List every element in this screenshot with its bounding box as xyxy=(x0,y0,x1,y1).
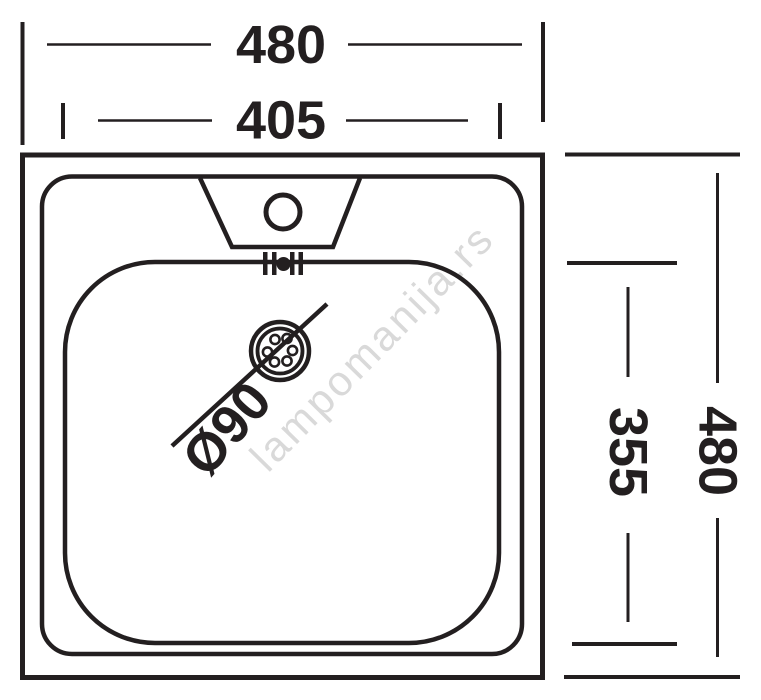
overflow-bar xyxy=(272,252,277,275)
faucet-deck xyxy=(200,178,360,247)
drain-hole xyxy=(270,335,279,344)
drain-hole xyxy=(282,356,291,365)
overflow-bar xyxy=(290,252,295,275)
overall-width-label: 480 xyxy=(236,15,326,75)
sink-technical-drawing: lampomanija.rs 480 405 xyxy=(0,0,761,700)
drain-hole xyxy=(270,357,279,366)
drawing-svg: lampomanija.rs 480 405 xyxy=(0,0,761,700)
drain-hole xyxy=(288,346,297,355)
bowl-depth-label: 355 xyxy=(598,407,658,497)
overflow-dot xyxy=(277,257,291,271)
overflow-bar xyxy=(299,252,304,275)
faucet-hole xyxy=(266,195,300,229)
overall-depth-label: 480 xyxy=(688,406,748,496)
bowl-width-label: 405 xyxy=(236,91,326,151)
overflow-bar xyxy=(263,252,268,275)
